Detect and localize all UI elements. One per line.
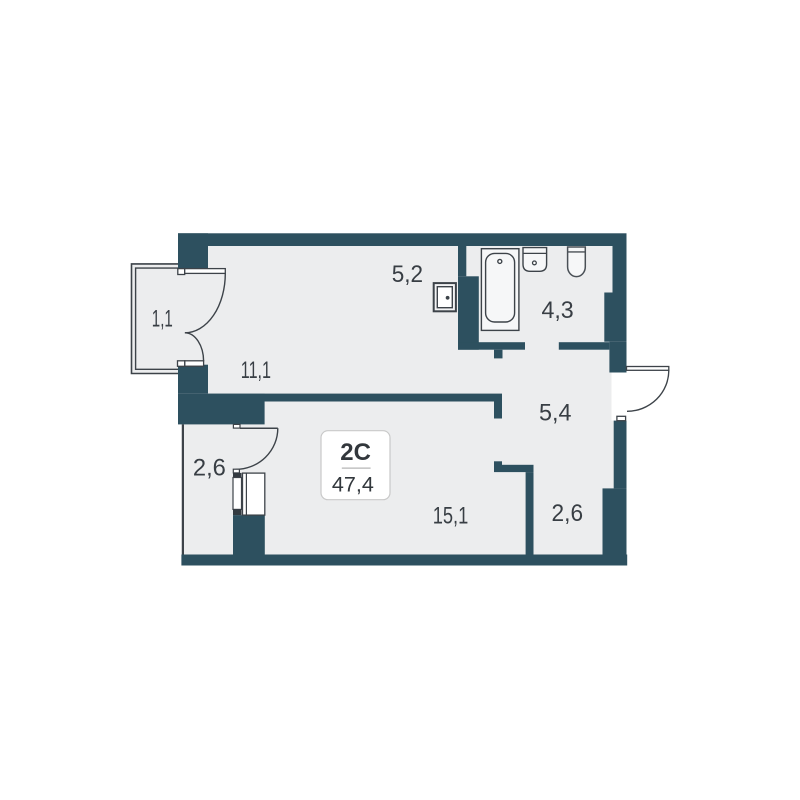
svg-text:2,6: 2,6 xyxy=(193,454,226,481)
svg-text:2C: 2C xyxy=(340,439,371,466)
svg-text:11,1: 11,1 xyxy=(241,357,271,384)
svg-text:4,3: 4,3 xyxy=(541,297,573,324)
svg-text:1,1: 1,1 xyxy=(152,305,173,332)
svg-text:15,1: 15,1 xyxy=(433,503,469,530)
svg-text:5,4: 5,4 xyxy=(539,400,572,427)
svg-text:5,2: 5,2 xyxy=(392,261,423,288)
svg-text:2,6: 2,6 xyxy=(552,500,584,527)
svg-text:47,4: 47,4 xyxy=(332,474,374,497)
